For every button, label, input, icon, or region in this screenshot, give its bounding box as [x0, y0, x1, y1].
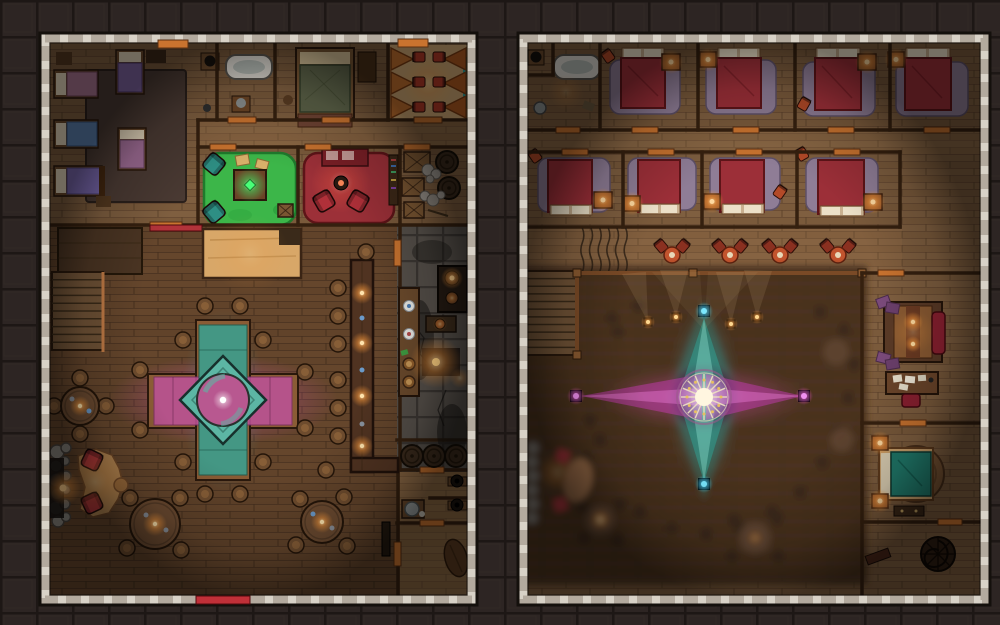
- battle-map-canvas: [0, 0, 1000, 625]
- left-vignette: [45, 38, 472, 600]
- top-door: [158, 40, 188, 48]
- entrance-door-red: [196, 596, 250, 604]
- right-vignette: [523, 38, 985, 600]
- top-door: [398, 39, 428, 47]
- battle-map-page: [0, 0, 1000, 625]
